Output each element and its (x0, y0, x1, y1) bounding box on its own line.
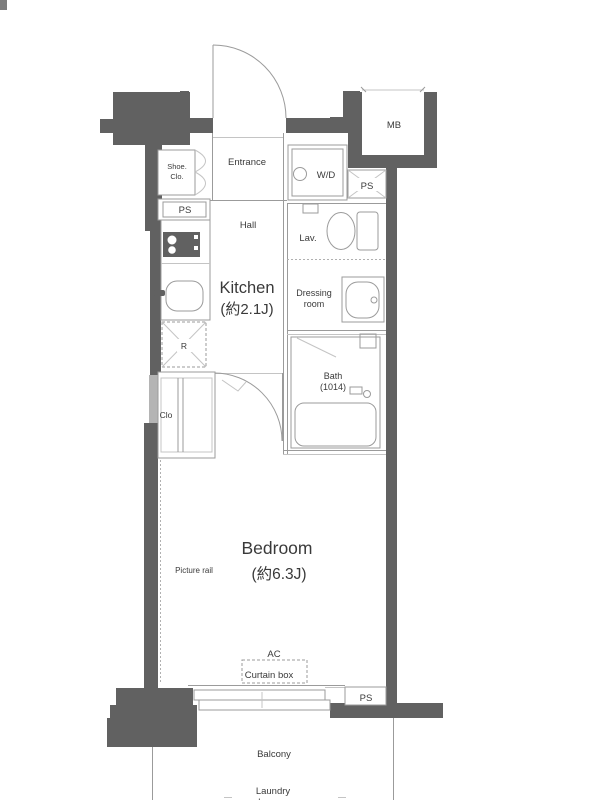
scan-artifact (0, 0, 7, 10)
room-label-bath-size: (1014) (320, 382, 346, 392)
label-washer-dryer: W/D (317, 170, 336, 181)
meter-box (361, 87, 425, 92)
label-ps-bottom: PS (360, 693, 373, 704)
room-label-lavatory: Lav. (299, 233, 316, 244)
bath-shelf-icon (360, 334, 376, 348)
room-label-shoe-closet-2: Clo. (170, 172, 183, 181)
room-label-dressing-2: room (304, 299, 325, 309)
label-picture-rail: Picture rail (175, 566, 213, 575)
room-label-bedroom: Bedroom (241, 538, 312, 558)
label-ps-left: PS (179, 205, 192, 216)
bath-faucet-icon (350, 387, 362, 394)
sliding-window-icon (194, 690, 330, 710)
washbasin (342, 277, 384, 322)
label-ac: AC (267, 649, 280, 660)
room-label-bedroom-size: (約6.3J) (251, 565, 306, 583)
room-label-shoe-closet-1: Shoe. (167, 162, 187, 171)
faucet-icon (371, 297, 377, 303)
label-refrigerator: R (181, 341, 187, 351)
floor-plan-drawing: Entrance Shoe. Clo. PS W/D MB PS Hall La… (0, 0, 600, 800)
room-label-entrance: Entrance (228, 157, 266, 168)
room-label-kitchen-size: (約2.1J) (220, 301, 273, 318)
label-ps-top-right: PS (361, 181, 374, 192)
room-label-closet: Clo (160, 410, 173, 420)
hand-sink-icon (303, 204, 318, 213)
room-label-kitchen: Kitchen (219, 279, 274, 297)
entrance-door-arc (213, 45, 286, 138)
floor-plan: Entrance Shoe. Clo. PS W/D MB PS Hall La… (0, 0, 600, 800)
label-laundry-hanger-1: Laundry (256, 786, 291, 797)
bath-door-icon (297, 338, 336, 357)
label-curtain-box: Curtain box (245, 670, 294, 681)
stove-icon (163, 232, 200, 257)
bedroom-door-arc (214, 373, 283, 441)
room-label-hall: Hall (240, 220, 256, 231)
label-meter-box: MB (387, 120, 401, 131)
bifold-door-icon (195, 150, 206, 195)
room-label-bath: Bath (324, 371, 343, 381)
closet-door-fold-icon (222, 380, 246, 391)
toilet-icon (327, 212, 378, 250)
room-label-balcony: Balcony (257, 749, 291, 760)
room-label-dressing-1: Dressing (296, 288, 332, 298)
bathtub-icon (295, 403, 376, 446)
